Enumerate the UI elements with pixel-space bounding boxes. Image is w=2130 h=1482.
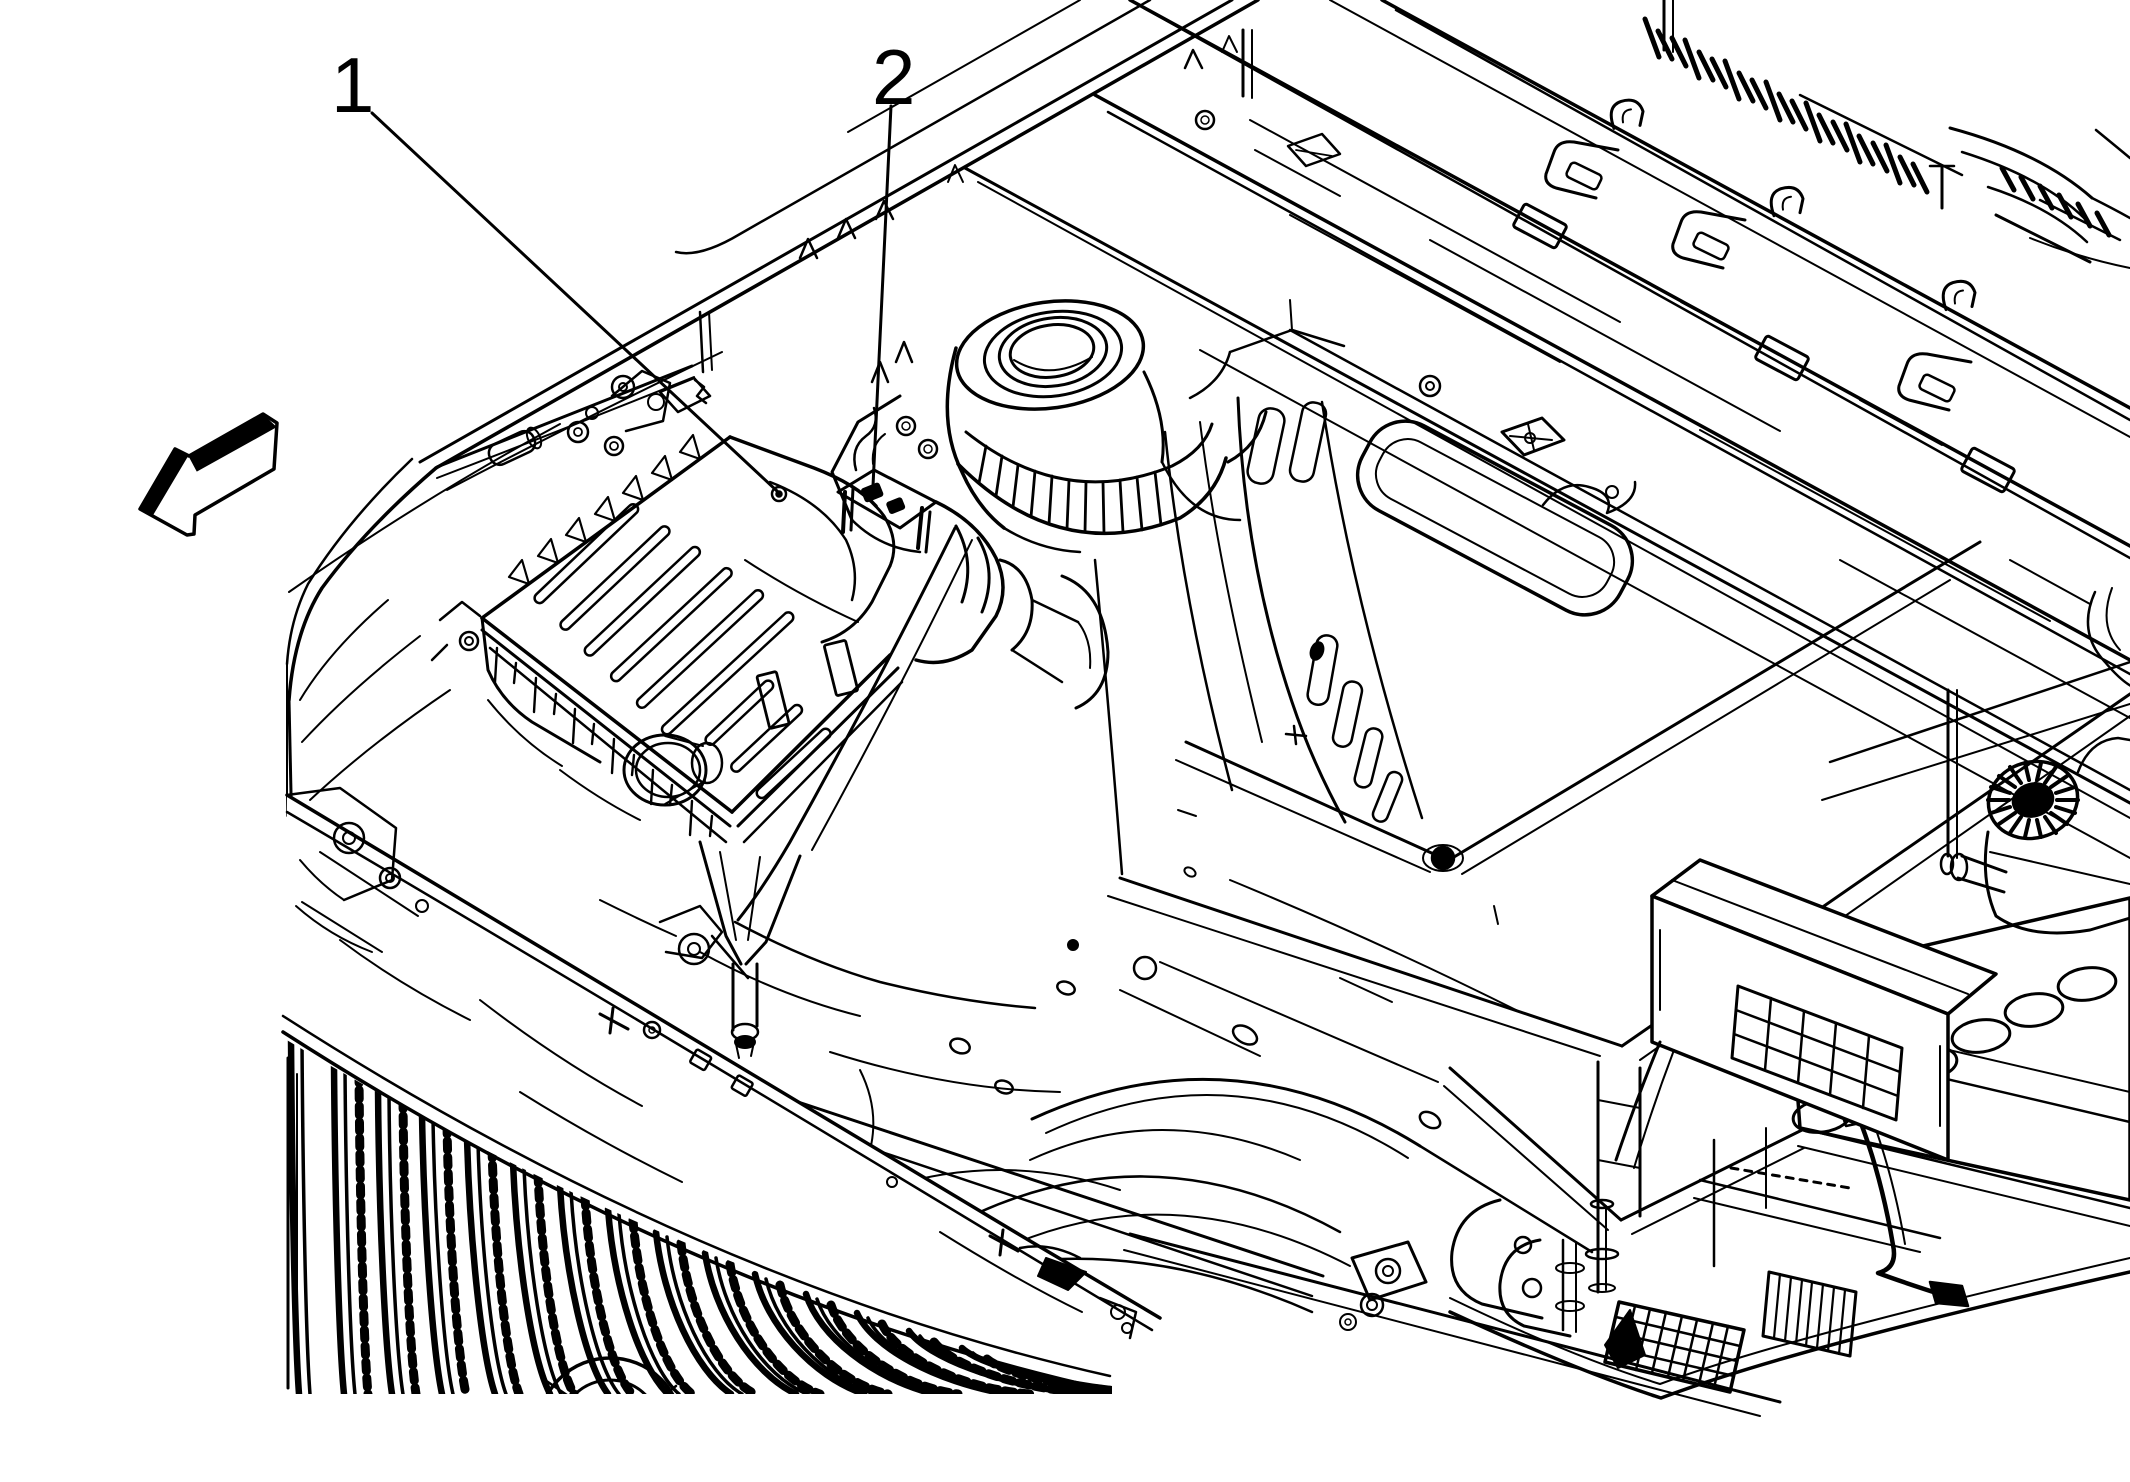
svg-text:1: 1 xyxy=(331,41,374,129)
svg-text:2: 2 xyxy=(872,33,915,121)
